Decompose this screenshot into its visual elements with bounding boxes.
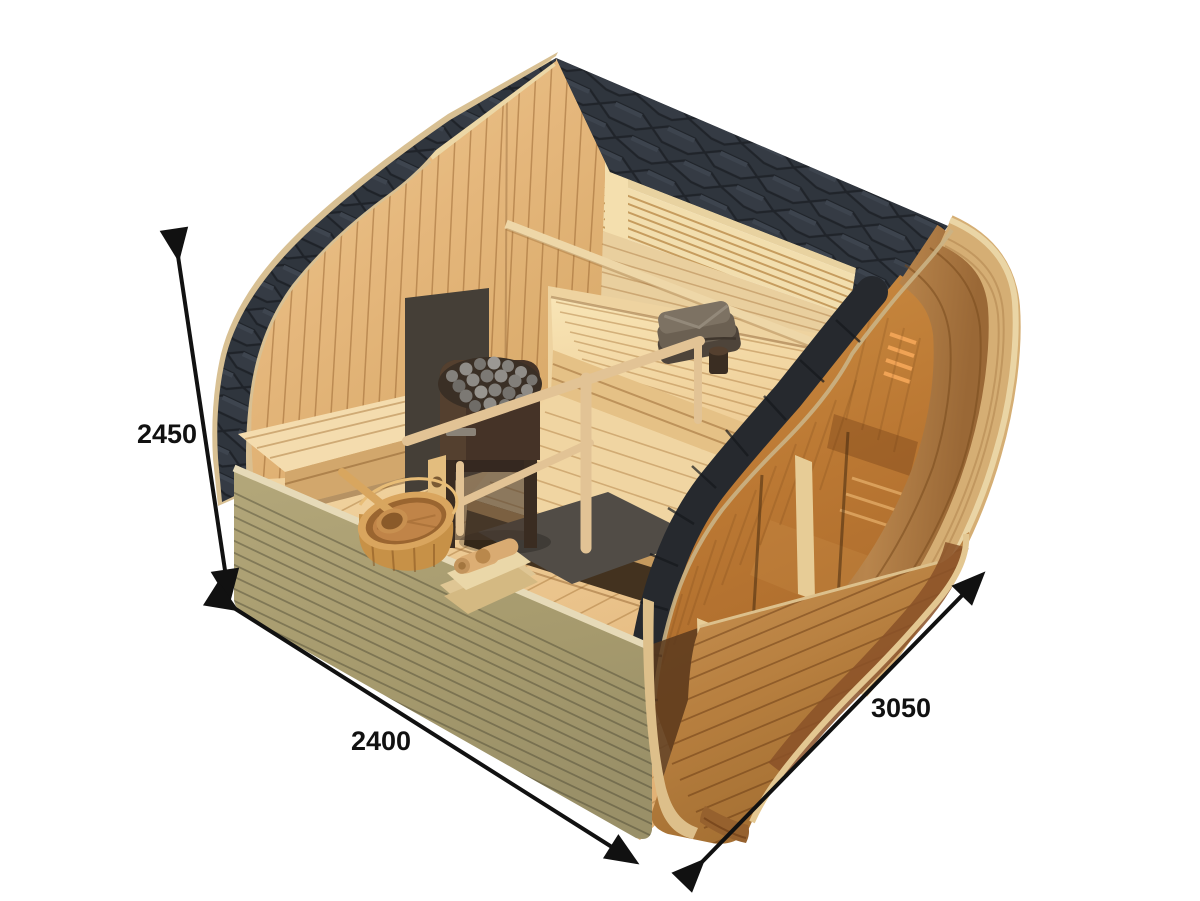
- svg-text:3050: 3050: [871, 693, 931, 723]
- svg-text:2450: 2450: [137, 419, 197, 449]
- svg-text:2400: 2400: [351, 726, 411, 756]
